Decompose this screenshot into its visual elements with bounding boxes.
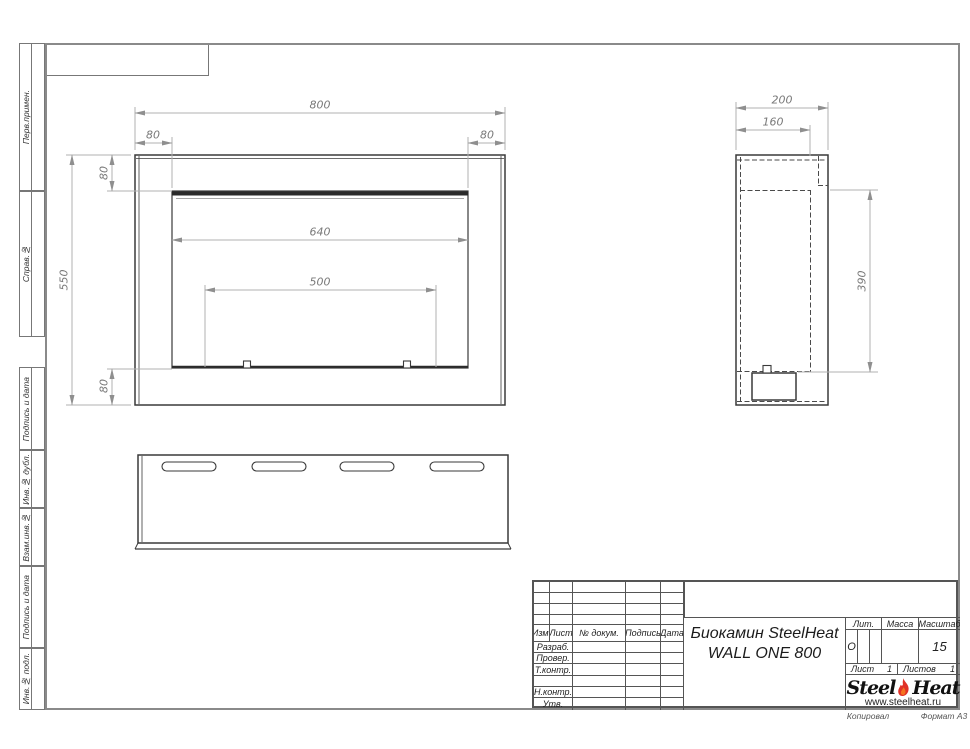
vent-slot: [252, 462, 306, 471]
dim-front-width: 800: [310, 99, 331, 112]
masshtab-header: Масштаб: [919, 618, 960, 630]
col-izm: Изм.: [534, 625, 550, 642]
dim-front-margin-right: 80: [480, 129, 494, 142]
row-tkontr: Т.контр.: [534, 664, 573, 676]
row-utv: Утв.: [534, 698, 573, 710]
vent-slot: [162, 462, 216, 471]
company-logo: Steel Heat www.steelheat.ru: [846, 675, 960, 710]
listov-cell: Листов1: [898, 664, 960, 675]
masshtab-value: 15: [919, 630, 960, 664]
dim-side-depth: 200: [772, 94, 793, 107]
drawing-sheet: Перв.примен. Справ.№ Подпись и дата Инв.…: [0, 0, 970, 749]
burner-tab-right: [404, 361, 411, 368]
dim-front-burner: 500: [310, 276, 331, 289]
lit-header: Лит.: [846, 618, 882, 630]
row-prover: Провер.: [534, 653, 573, 664]
col-podpis: Подпись: [626, 625, 661, 642]
dim-side-opening-height: 390: [856, 271, 869, 292]
dim-front-top: 80: [98, 166, 111, 180]
col-ndokum: № докум.: [573, 625, 626, 642]
document-title-line2: WALL ONE 800: [708, 644, 821, 664]
dim-front-bottom: 80: [98, 379, 111, 393]
logo-url: www.steelheat.ru: [865, 697, 941, 708]
list-cell: Лист1: [846, 664, 898, 675]
burner-tab-left: [244, 361, 251, 368]
col-list: Лист: [550, 625, 573, 642]
format-label: Формат А3: [921, 711, 968, 721]
dim-front-height: 550: [58, 270, 71, 291]
side-burner-tab: [763, 366, 771, 374]
logo-heat: Heat: [912, 677, 959, 699]
logo-steel: Steel: [846, 677, 895, 699]
massa-value: [882, 630, 919, 664]
side-burner-box: [752, 373, 796, 400]
lit-value: О: [846, 630, 858, 664]
bottom-view: [135, 455, 511, 549]
dim-side-inner-depth: 160: [763, 116, 784, 129]
kopiroval-label: Копировал: [847, 711, 889, 721]
row-razrab: Разраб.: [534, 642, 573, 653]
designation-cell: [684, 582, 960, 618]
document-title: Биокамин SteelHeat WALL ONE 800: [684, 618, 846, 710]
row-nkontr: Н.контр.: [534, 687, 573, 698]
flame-icon: [896, 678, 911, 698]
vent-slot: [340, 462, 394, 471]
vent-slot: [430, 462, 484, 471]
title-block: Изм. Лист № докум. Подпись Дата Разраб. …: [532, 580, 958, 708]
row-blank: [534, 676, 573, 687]
side-view: [736, 155, 828, 405]
document-title-line1: Биокамин SteelHeat: [690, 624, 838, 644]
dim-front-margin-left: 80: [146, 129, 160, 142]
massa-header: Масса: [882, 618, 919, 630]
dim-front-opening: 640: [310, 226, 331, 239]
col-data: Дата: [661, 625, 684, 642]
